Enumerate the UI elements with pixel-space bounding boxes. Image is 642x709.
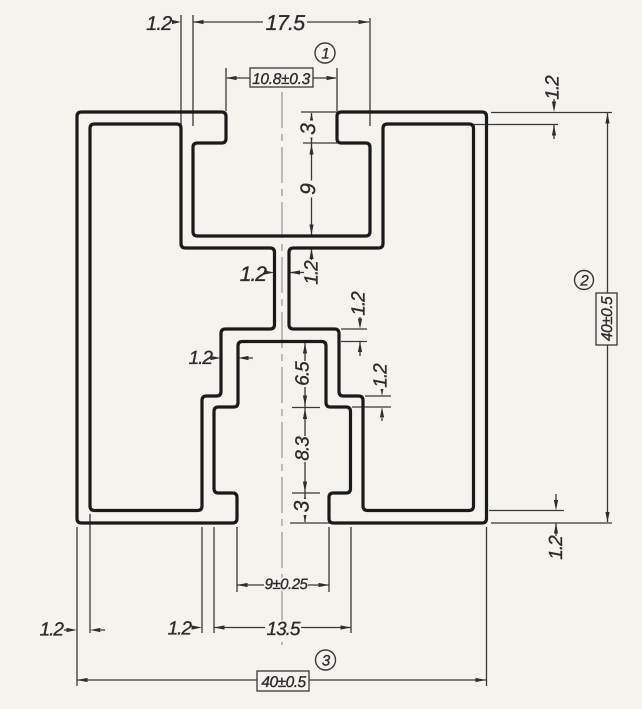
svg-text:1.2: 1.2 (146, 13, 172, 35)
svg-text:13.5: 13.5 (267, 619, 301, 640)
svg-text:1.2: 1.2 (543, 75, 564, 100)
svg-text:1.2: 1.2 (40, 620, 65, 641)
svg-text:6.5: 6.5 (293, 361, 314, 386)
svg-text:17.5: 17.5 (266, 11, 306, 35)
svg-text:3: 3 (297, 123, 320, 135)
svg-text:1.2: 1.2 (240, 263, 268, 286)
svg-text:1.2: 1.2 (349, 291, 370, 316)
svg-text:40±0.5: 40±0.5 (599, 296, 616, 341)
svg-text:40±0.5: 40±0.5 (261, 674, 306, 691)
svg-text:1.2: 1.2 (302, 260, 323, 285)
svg-text:9: 9 (297, 183, 320, 195)
svg-text:1.2: 1.2 (546, 535, 567, 560)
svg-text:1: 1 (321, 46, 329, 63)
svg-text:1.2: 1.2 (371, 363, 392, 388)
svg-text:3: 3 (291, 500, 314, 512)
svg-text:1.2: 1.2 (168, 619, 193, 640)
svg-text:1.2: 1.2 (189, 348, 214, 369)
svg-text:8.3: 8.3 (293, 436, 314, 461)
svg-text:10.8±0.3: 10.8±0.3 (252, 71, 311, 88)
svg-text:9±0.25: 9±0.25 (265, 576, 309, 593)
